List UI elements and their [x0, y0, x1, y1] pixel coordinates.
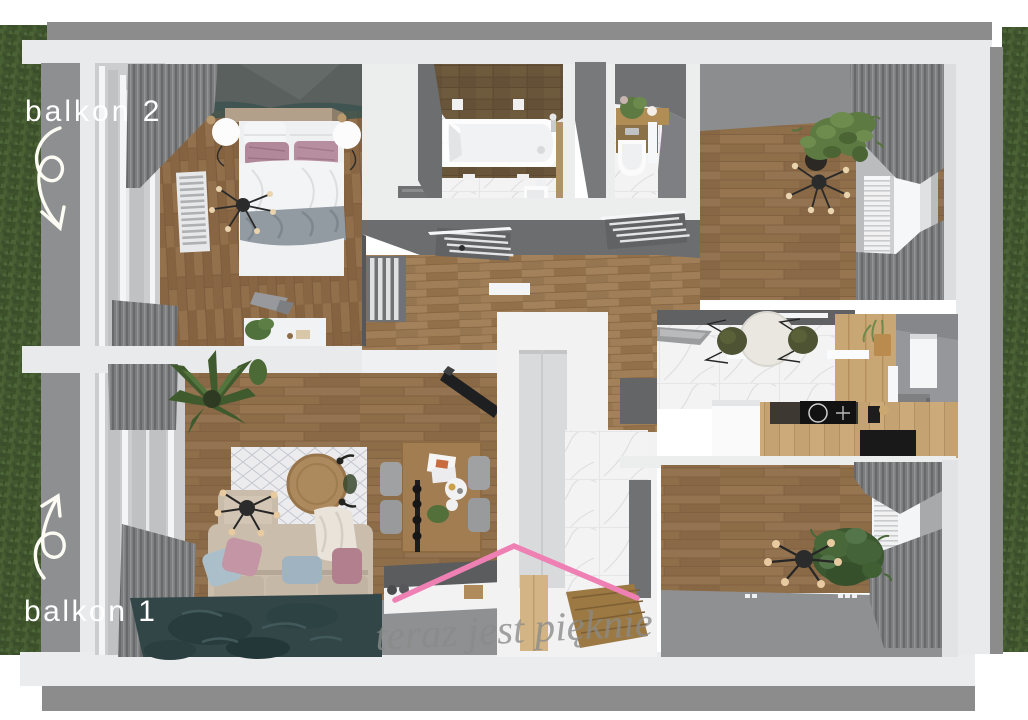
svg-text:balkon 2: balkon 2: [25, 95, 162, 128]
svg-text:balkon 1: balkon 1: [24, 595, 157, 628]
